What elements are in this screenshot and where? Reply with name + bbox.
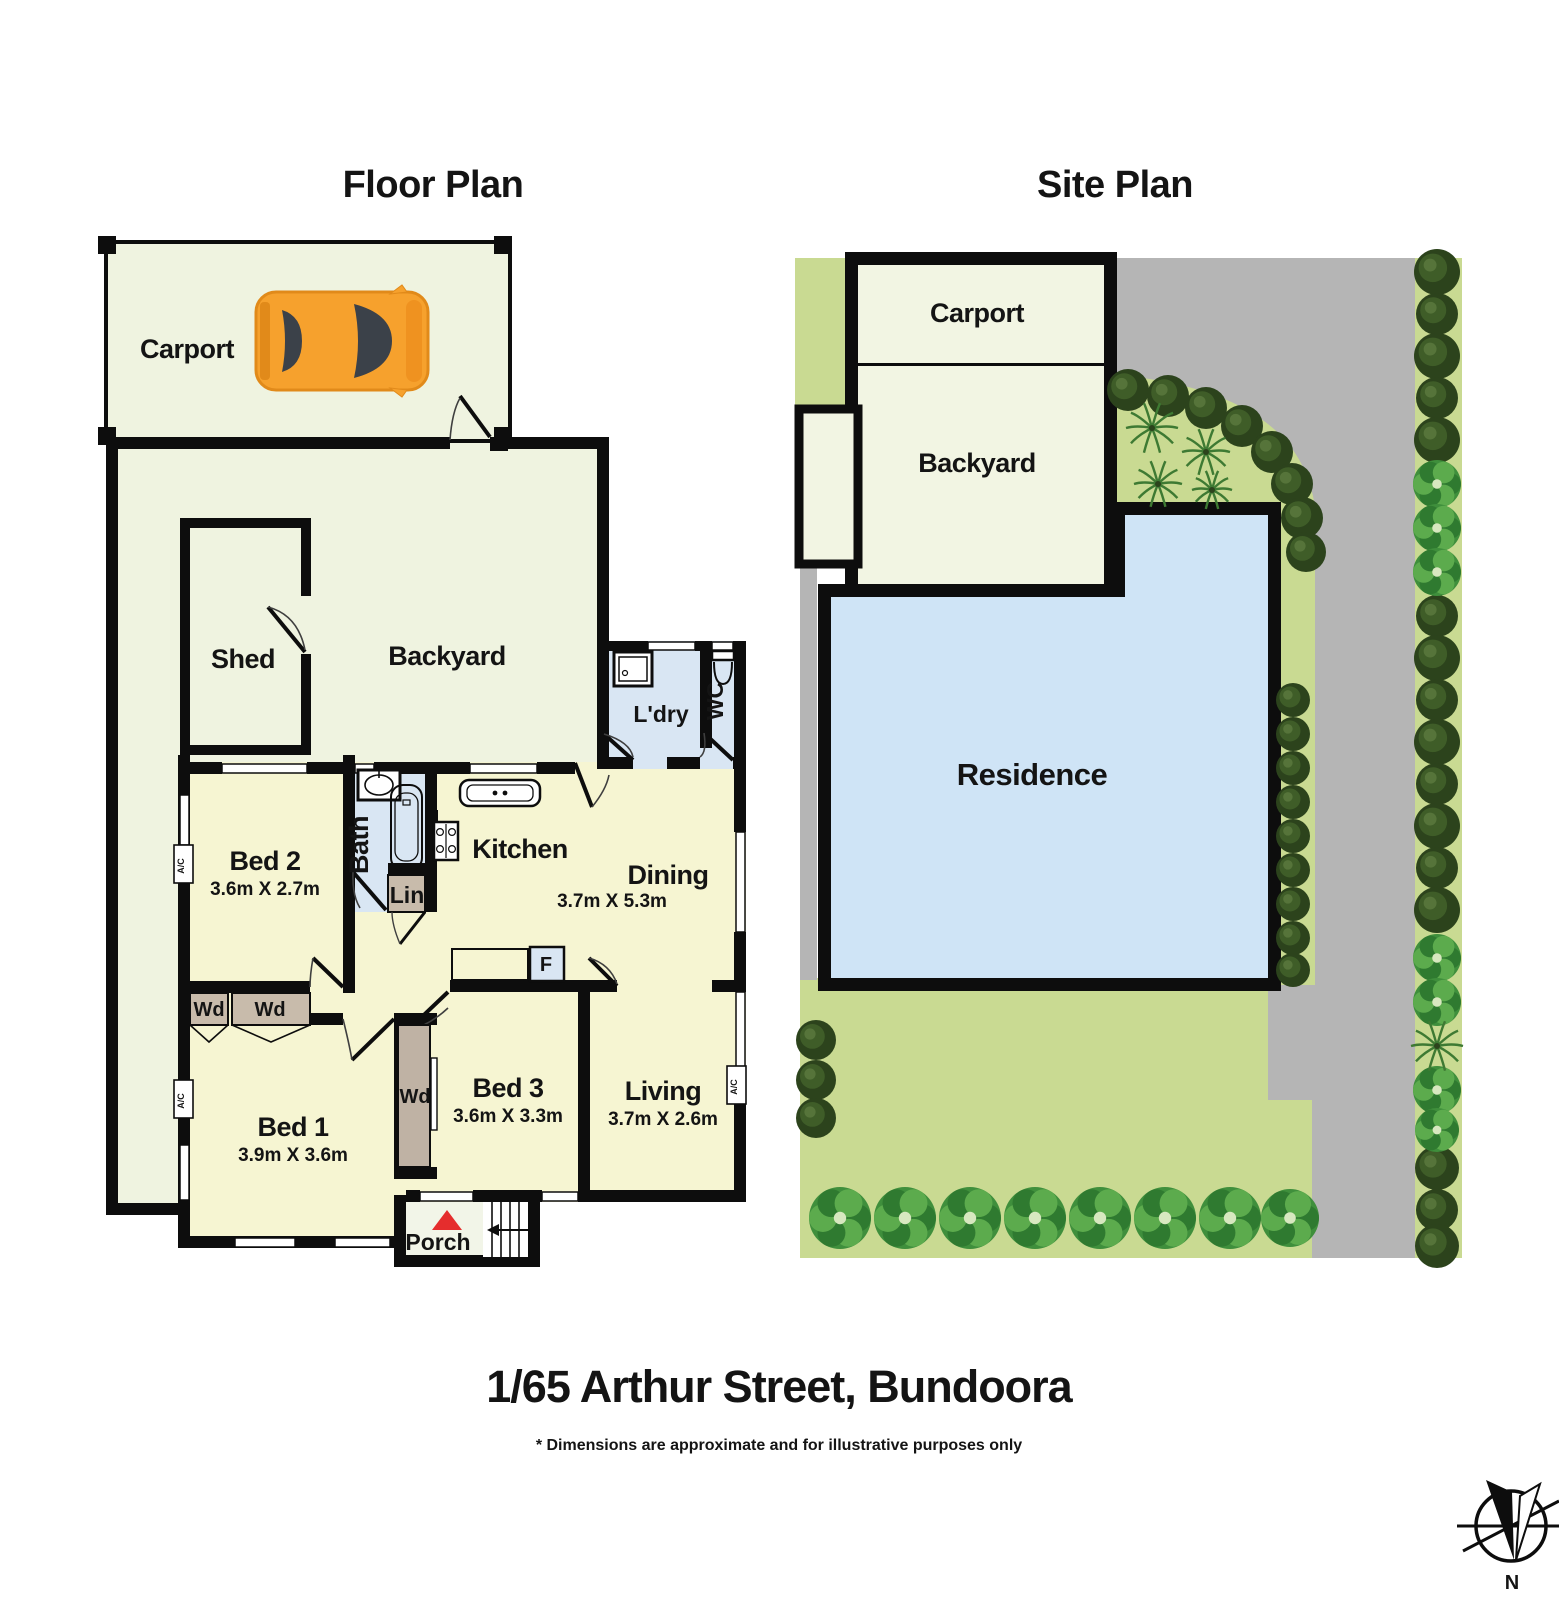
- tree-icon: [1276, 853, 1310, 887]
- site-plan: Site Plan Carport Backyard Residence: [795, 164, 1463, 1268]
- room-label-dining: Dining: [628, 860, 709, 890]
- room-label-living: Living: [625, 1076, 702, 1106]
- tree-icon: [1416, 847, 1458, 889]
- bush-icon: [1199, 1187, 1261, 1249]
- room-dims-bed3: 3.6m X 3.3m: [453, 1106, 563, 1127]
- bush-icon: [1413, 504, 1461, 552]
- label-ac-bed1: A/C: [176, 1093, 186, 1109]
- site-plan-title: Site Plan: [1037, 164, 1193, 206]
- site-label-carport: Carport: [930, 298, 1025, 328]
- tree-icon: [1276, 717, 1310, 751]
- label-wardrobe-3: Wd: [399, 1086, 430, 1108]
- side-grass: [795, 258, 845, 408]
- site-backyard-area: [850, 365, 1104, 592]
- bush-icon: [1413, 548, 1461, 596]
- stairs: [483, 1202, 528, 1257]
- compass-n-label: N: [1505, 1572, 1519, 1594]
- bush-icon: [1069, 1187, 1131, 1249]
- tree-icon: [1414, 719, 1460, 765]
- tree-icon: [1416, 377, 1458, 419]
- tree-icon: [1185, 387, 1227, 429]
- tree-icon: [1414, 249, 1460, 295]
- bush-icon: [1413, 460, 1461, 508]
- tree-icon: [1416, 595, 1458, 637]
- floor-plan: Floor Plan: [98, 164, 746, 1267]
- tree-icon: [1276, 751, 1310, 785]
- tree-icon: [1416, 763, 1458, 805]
- bush-icon: [809, 1187, 871, 1249]
- room-dims-dining: 3.7m X 5.3m: [557, 891, 667, 912]
- bush-icon: [1413, 978, 1461, 1026]
- bush-icon: [1413, 934, 1461, 982]
- side-path: [800, 568, 817, 980]
- room-label-linen: Lin: [390, 882, 425, 908]
- label-wardrobe-1: Wd: [193, 999, 224, 1021]
- bush-icon: [1413, 1066, 1461, 1114]
- bush-icon: [874, 1187, 936, 1249]
- tree-icon: [796, 1060, 836, 1100]
- site-label-residence: Residence: [957, 757, 1108, 792]
- tree-icon: [1416, 679, 1458, 721]
- tree-icon: [1286, 532, 1326, 572]
- room-label-wc: WC: [702, 682, 728, 720]
- site-label-backyard: Backyard: [918, 448, 1036, 478]
- room-label-shed: Shed: [211, 644, 275, 674]
- tree-icon: [1107, 369, 1149, 411]
- tree-icon: [796, 1020, 836, 1060]
- room-dims-bed1: 3.9m X 3.6m: [238, 1145, 348, 1166]
- address: 1/65 Arthur Street, Bundoora: [486, 1361, 1073, 1412]
- room-label-backyard: Backyard: [388, 641, 506, 671]
- room-label-porch: Porch: [405, 1229, 470, 1255]
- tree-icon: [1414, 333, 1460, 379]
- car-icon: [256, 285, 428, 397]
- room-dims-bed2: 3.6m X 2.7m: [210, 879, 320, 900]
- laundry-sink-icon: [614, 652, 652, 686]
- bush-icon: [939, 1187, 1001, 1249]
- stove-icon: [434, 822, 458, 860]
- bath-basin-icon: [358, 770, 400, 800]
- property-plan-canvas: Floor Plan: [0, 0, 1559, 1600]
- room-label-carport: Carport: [140, 334, 235, 364]
- label-ac-bed2: A/C: [176, 858, 186, 874]
- tree-icon: [1276, 785, 1310, 819]
- room-label-laundry: L'dry: [633, 701, 689, 727]
- compass-icon: N: [1457, 1480, 1559, 1594]
- tree-icon: [796, 1098, 836, 1138]
- disclaimer: * Dimensions are approximate and for ill…: [536, 1437, 1022, 1454]
- tree-icon: [1276, 953, 1310, 987]
- bush-icon: [1134, 1187, 1196, 1249]
- shed-area: [185, 523, 306, 750]
- tree-icon: [1276, 683, 1310, 717]
- label-wardrobe-2: Wd: [254, 999, 285, 1021]
- tree-icon: [1276, 921, 1310, 955]
- tree-icon: [1276, 887, 1310, 921]
- room-label-bath: Bath: [344, 816, 374, 874]
- tree-icon: [1414, 803, 1460, 849]
- tree-icon: [1276, 819, 1310, 853]
- tree-icon: [1414, 635, 1460, 681]
- room-label-bed3: Bed 3: [472, 1073, 544, 1103]
- tree-icon: [1416, 293, 1458, 335]
- tree-icon: [1415, 1224, 1459, 1268]
- kitchen-sink-icon: [460, 780, 540, 806]
- tree-icon: [1147, 375, 1189, 417]
- tree-icon: [1414, 887, 1460, 933]
- room-label-bed2: Bed 2: [229, 846, 300, 876]
- floor-plan-title: Floor Plan: [343, 164, 524, 206]
- bush-icon: [1004, 1187, 1066, 1249]
- tree-icon: [1415, 1146, 1459, 1190]
- label-ac-living: A/C: [729, 1079, 739, 1095]
- label-fridge: F: [540, 954, 552, 976]
- room-label-kitchen: Kitchen: [472, 834, 568, 864]
- tree-icon: [1414, 417, 1460, 463]
- bush-icon: [1415, 1108, 1459, 1152]
- room-label-bed1: Bed 1: [257, 1112, 329, 1142]
- room-dims-living: 3.7m X 2.6m: [608, 1109, 718, 1130]
- bush-icon: [1261, 1189, 1319, 1247]
- site-side-court: [799, 409, 858, 564]
